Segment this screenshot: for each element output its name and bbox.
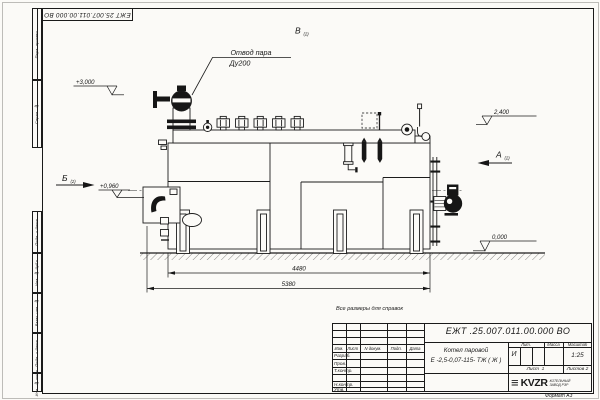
- role-tkontr: Т.контр.: [334, 368, 353, 373]
- kvzr-logo: ≡ KVZR КОТЕЛЬНЫЙ ЗАВОД РЭР: [511, 376, 590, 390]
- scale-header: Масштаб: [563, 342, 592, 347]
- kvzr-logo-text: KVZR: [521, 377, 548, 389]
- stamp-perv-primen: Перв. примен.: [32, 8, 43, 80]
- col-header-podp: Подп.: [387, 346, 407, 351]
- stamp-sprav-no: Справ. №: [32, 80, 43, 148]
- stamp-inv-podl: Инв. № подл.: [32, 373, 43, 392]
- role-prov: Пров.: [334, 361, 346, 366]
- scale-value: 1:25: [563, 352, 592, 359]
- sheet-number: Лист 1: [508, 367, 563, 372]
- format-label: Формат А3: [545, 393, 572, 399]
- col-header-data: Дата: [406, 346, 424, 351]
- top-doc-number-box: ЕЖТ 25.007.011.00.000 ВО: [42, 8, 133, 21]
- top-doc-number: ЕЖТ 25.007.011.00.000 ВО: [44, 11, 131, 18]
- stamp-podp-data-1: Подп. и дата: [32, 211, 43, 253]
- sheets-total: Листов 2: [563, 367, 592, 372]
- product-name-line1: Котел паровой: [424, 347, 508, 354]
- lit-value: И: [508, 351, 520, 358]
- stamp-podp-data-2: Подп. и дата: [32, 333, 43, 373]
- stamp-vzam-inv: Взам. инв. №: [32, 293, 43, 333]
- stamp-inv-dubl: Инв. № дубл.: [32, 253, 43, 293]
- role-razrab: Разраб.: [334, 353, 351, 358]
- kvzr-logo-sub2: ЗАВОД РЭР: [550, 383, 571, 387]
- col-header-izm: Изм.: [332, 346, 346, 351]
- col-header-ndokum: N докум.: [360, 346, 387, 351]
- kvzr-logo-icon: ≡: [511, 378, 519, 388]
- role-utv: Утв.: [334, 387, 344, 392]
- role-nkontr: Н.контр.: [334, 382, 353, 387]
- drawing-sheet: Отвод пара Ду200 Б (2) А (2) В (2) +3,00…: [0, 0, 600, 400]
- product-name-line2: Е -2,5-0,07-115- ТЖ ( Ж ): [424, 357, 508, 364]
- lit-header: Лит.: [508, 342, 544, 347]
- col-header-list: Лист: [346, 346, 360, 351]
- reference-note: Все размеры для справок: [336, 306, 403, 312]
- mass-header: Масса: [544, 342, 563, 347]
- doc-number: ЕЖТ .25.007.011.00.000 ВО: [424, 326, 592, 336]
